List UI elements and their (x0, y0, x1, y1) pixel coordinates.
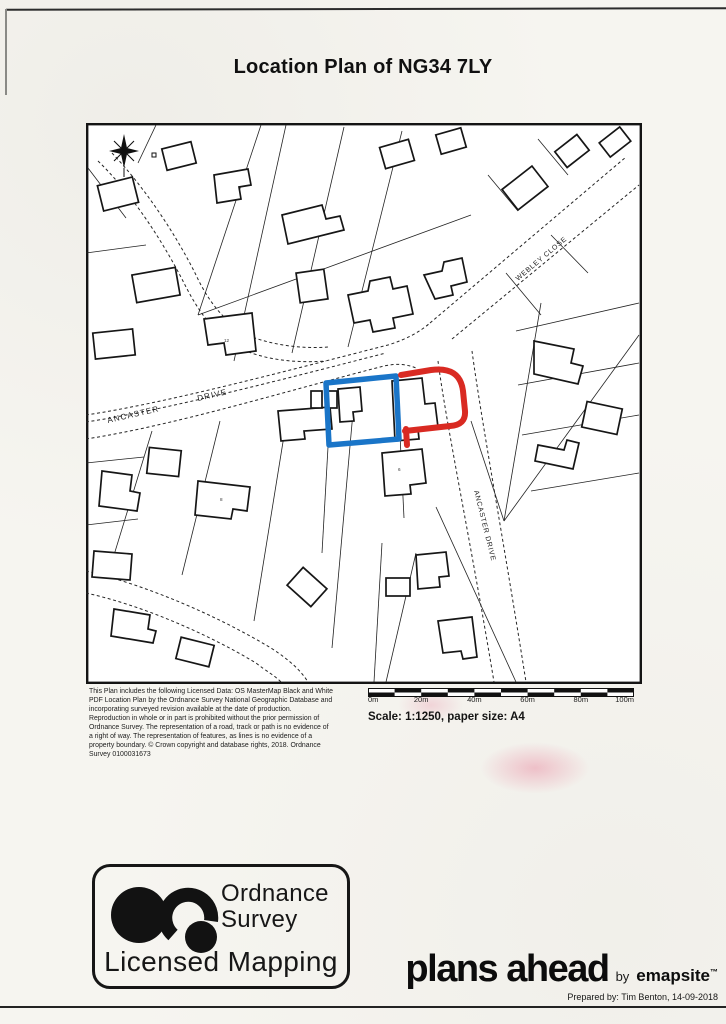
scale-tick-label: 0m (368, 695, 378, 704)
scale-bar (368, 684, 634, 693)
os-logo-name-line2: Survey (221, 907, 329, 933)
trademark-symbol: ™ (710, 967, 718, 976)
scale-tick-label: 100m (615, 695, 634, 704)
scale-caption: Scale: 1:1250, paper size: A4 (368, 711, 525, 723)
map-drawing: ANCASTER DRIVE WEBLEY CLOSE ANCASTER DRI… (86, 123, 642, 684)
scale-bar-labels: 0m 20m 40m 60m 80m 100m (368, 695, 634, 706)
house-number: 12 (224, 338, 230, 343)
footer-rule (0, 1006, 726, 1008)
scan-artifact-left-line (5, 9, 7, 95)
ordnance-survey-logo-box: Ordnance Survey Licensed Mapping (92, 864, 350, 989)
footer-brand: plans ahead by emapsite™ Prepared by: Ti… (405, 948, 718, 1002)
location-plan-map: ANCASTER DRIVE WEBLEY CLOSE ANCASTER DRI… (86, 123, 642, 684)
plans-ahead-logo: plans ahead (405, 948, 608, 991)
page-title: Location Plan of NG34 7LY (0, 56, 726, 79)
prepared-by-line: Prepared by: Tim Benton, 14-09-2018 (405, 992, 718, 1002)
os-logo-name-line1: Ordnance (221, 881, 329, 907)
scan-artifact-top-line (6, 7, 726, 11)
scale-tick-label: 40m (467, 695, 482, 704)
house-number: 8 (220, 497, 223, 502)
brand-by-label: by (616, 969, 630, 984)
scale-tick-label: 60m (520, 695, 535, 704)
map-border (87, 124, 641, 683)
scanned-location-plan-page: Location Plan of NG34 7LY (0, 0, 726, 1024)
license-legal-text: This Plan includes the following License… (89, 687, 367, 759)
house-number: 6 (398, 467, 401, 472)
scan-smudge (480, 742, 590, 794)
os-licensed-mapping-label: Licensed Mapping (95, 946, 347, 978)
os-logo-icon (109, 879, 227, 955)
emapsite-logo: emapsite™ (636, 966, 718, 986)
os-logo-name: Ordnance Survey (221, 881, 329, 933)
scale-tick-label: 80m (574, 695, 589, 704)
scale-tick-label: 20m (414, 695, 429, 704)
